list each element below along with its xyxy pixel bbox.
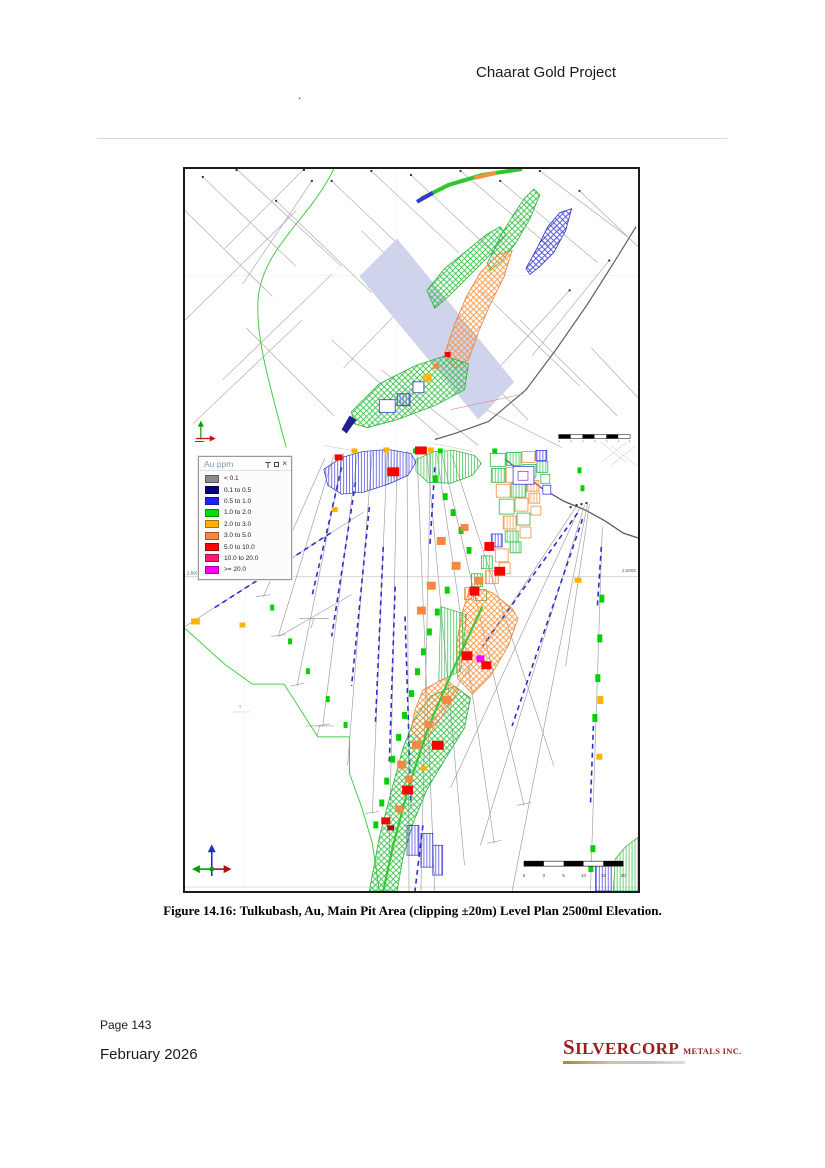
scale-label: 0 <box>543 873 546 878</box>
grade-band-orange <box>474 173 496 178</box>
block-cell <box>379 400 395 413</box>
legend-swatch <box>205 509 219 517</box>
header-divider <box>97 138 727 139</box>
grade-band-green <box>421 169 522 199</box>
restore-icon <box>274 462 279 467</box>
block-cell <box>397 394 410 406</box>
top-plan-view <box>185 169 638 447</box>
legend-entry: 0.5 to 1.0 <box>199 496 291 507</box>
close-icon: × <box>282 461 287 467</box>
legend-label: < 0.1 <box>224 475 239 482</box>
scale-label: 5 <box>562 873 565 878</box>
legend-swatch <box>205 475 219 483</box>
hatched-zone-blue <box>526 209 572 275</box>
grade-tick-red <box>445 352 451 357</box>
elevation-label-left: 2,500 <box>187 571 199 576</box>
logo-wordmark: SILVERCORP <box>563 1035 679 1060</box>
legend-label: 1.0 to 2.0 <box>224 509 251 516</box>
silvercorp-logo: SILVERCORP METALS INC. <box>563 1035 743 1064</box>
grade-ticks-green <box>270 448 604 872</box>
legend-entry: < 0.1 <box>199 473 291 484</box>
report-page: Chaarat Gold Project . <box>0 0 825 1168</box>
legend-swatch <box>205 497 219 505</box>
legend-label: 0.5 to 1.0 <box>224 498 251 505</box>
block-cell <box>413 382 424 393</box>
logo-suffix: METALS INC. <box>683 1046 741 1056</box>
scale-bar-bottom <box>524 861 623 866</box>
legend-entry: 2.0 to 3.0 <box>199 519 291 530</box>
legend-swatch <box>205 554 219 562</box>
map-figure: 5 0 5 10 15 20 Y 2 <box>183 167 640 893</box>
figure-caption: Figure 14.16: Tulkubash, Au, Main Pit Ar… <box>0 903 825 919</box>
legend-entry: 5.0 to 10.0 <box>199 541 291 552</box>
legend-titlebar: Au ppm × <box>199 457 291 471</box>
logo-underline <box>563 1061 685 1064</box>
stray-mark: . <box>298 88 301 102</box>
scale-label: 20 <box>621 873 626 878</box>
legend-swatch <box>205 520 219 528</box>
grade-band-blue <box>417 193 433 202</box>
elevation-label-right: 2,500Z <box>622 568 636 573</box>
legend-label: 2.0 to 3.0 <box>224 521 251 528</box>
scale-label: 5 <box>523 873 526 878</box>
legend-label: 10.0 to 20.0 <box>224 555 258 562</box>
legend-swatch <box>205 543 219 551</box>
legend-entry: 3.0 to 5.0 <box>199 530 291 541</box>
block-zone-blue <box>407 825 419 855</box>
y-axis-label: Y <box>239 704 243 710</box>
block-zone-blue <box>421 833 433 867</box>
legend-swatch <box>205 486 219 494</box>
page-title: Chaarat Gold Project <box>476 64 616 81</box>
legend-entries: < 0.1 0.1 to 0.5 0.5 to 1.0 1.0 to 2.0 2… <box>199 471 291 579</box>
axis-triad-bottom <box>192 844 232 876</box>
scale-label: 10 <box>581 873 586 878</box>
scale-bar-top <box>559 435 630 442</box>
grade-tick-amber <box>423 374 432 382</box>
legend-entry: 10.0 to 20.0 <box>199 553 291 564</box>
page-number: Page 143 <box>100 1018 151 1032</box>
grade-tick-orange <box>433 364 439 369</box>
legend-label: 5.0 to 10.0 <box>224 544 255 551</box>
hatched-zone-green <box>352 356 469 428</box>
pin-icon <box>265 461 271 468</box>
legend-label: 3.0 to 5.0 <box>224 532 251 539</box>
block-zone-blue <box>433 845 443 875</box>
scale-label: 15 <box>601 873 606 878</box>
grade-block-magenta <box>476 655 484 662</box>
legend-title: Au ppm <box>204 459 233 469</box>
legend-label: 0.1 to 0.5 <box>224 487 251 494</box>
legend-label: >= 20.0 <box>224 566 246 573</box>
legend-entry: 1.0 to 2.0 <box>199 507 291 518</box>
axis-triad-top <box>195 421 216 442</box>
au-ppm-legend: Au ppm × < 0.1 0.1 to 0.5 0.5 to 1.0 1.0… <box>198 456 292 580</box>
block-zone-green <box>416 450 481 483</box>
legend-swatch <box>205 532 219 540</box>
legend-swatch <box>205 566 219 574</box>
grade-block-darkred <box>387 825 394 830</box>
footer-date: February 2026 <box>100 1046 198 1063</box>
legend-entry: 0.1 to 0.5 <box>199 484 291 495</box>
legend-entry: >= 20.0 <box>199 564 291 575</box>
